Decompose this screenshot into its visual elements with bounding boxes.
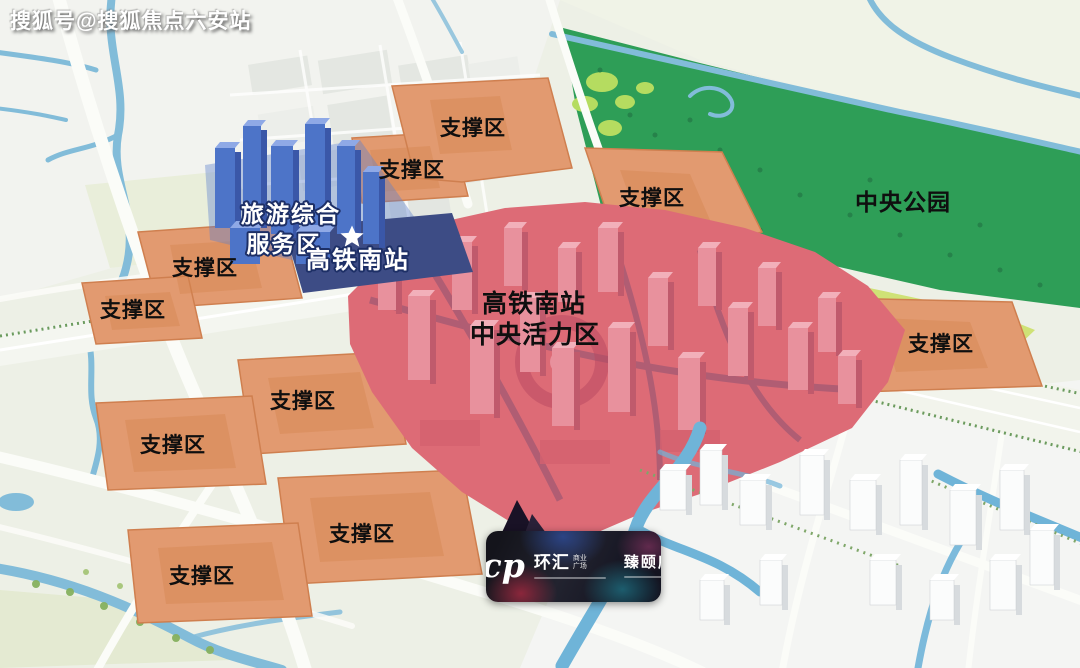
label-support-zone-1: 支撑区 <box>440 116 506 140</box>
brand-name: 环汇 <box>534 554 570 573</box>
label-station: 高铁南站 <box>306 246 410 274</box>
masterplan-map: 支撑区 支撑区 支撑区 支撑区 支撑区 支撑区 支撑区 支撑区 支撑区 支撑区 … <box>0 0 1080 668</box>
label-tourism-line1: 旅游综合 <box>241 201 341 227</box>
fineprint-right <box>624 576 661 578</box>
label-vitality-line2: 中央活力区 <box>470 321 600 349</box>
brand-type: 商业 广场 <box>573 555 587 571</box>
label-central-park: 中央公园 <box>855 189 951 215</box>
brand-block: 环汇 商业 广场 <box>534 554 606 579</box>
project-block: 臻颐府 <box>624 555 661 578</box>
label-support-zone-9: 支撑区 <box>329 522 395 546</box>
brand-type-line1: 商业 <box>573 555 587 563</box>
label-vitality-line1: 高铁南站 <box>482 289 586 318</box>
watermark: 搜狐号@搜狐焦点六安站 <box>10 5 251 35</box>
brand-type-line2: 广场 <box>573 563 587 571</box>
label-support-zone-3: 支撑区 <box>619 186 685 210</box>
label-support-zone-4: 支撑区 <box>172 256 238 280</box>
label-support-zone-6: 支撑区 <box>908 332 974 356</box>
label-support-zone-10: 支撑区 <box>169 564 235 588</box>
label-support-zone-2: 支撑区 <box>379 158 445 182</box>
label-support-zone-5: 支撑区 <box>100 298 166 322</box>
label-support-zone-7: 支撑区 <box>270 389 336 413</box>
label-support-zone-8: 支撑区 <box>140 433 206 457</box>
icp-logo: icp <box>486 549 525 582</box>
fineprint-left <box>534 577 606 579</box>
project-name: 臻颐府 <box>624 555 661 572</box>
brand-logo-banner: icp 环汇 商业 广场 臻颐府 <box>486 531 661 602</box>
